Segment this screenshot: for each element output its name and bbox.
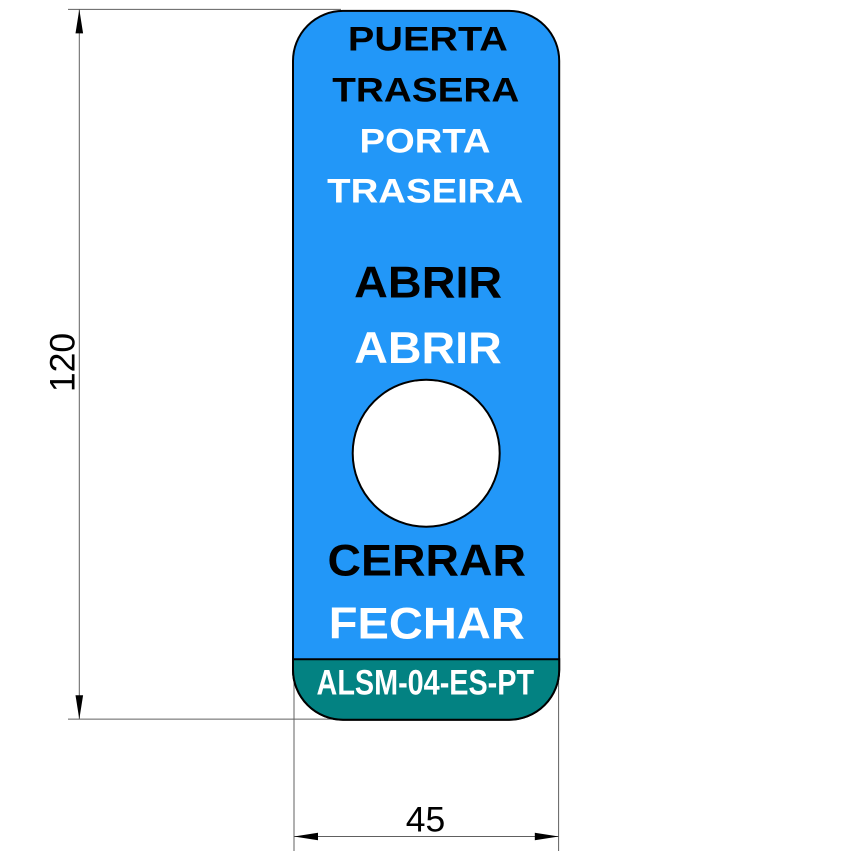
- svg-text:TRASEIRA: TRASEIRA: [327, 173, 523, 211]
- svg-text:TRASERA: TRASERA: [332, 71, 519, 109]
- svg-text:ABRIR: ABRIR: [354, 258, 502, 307]
- svg-text:ALSM-04-ES-PT: ALSM-04-ES-PT: [317, 664, 535, 703]
- svg-text:CERRAR: CERRAR: [328, 536, 527, 585]
- svg-text:FECHAR: FECHAR: [329, 600, 525, 649]
- svg-text:45: 45: [406, 800, 446, 840]
- svg-text:120: 120: [42, 333, 82, 392]
- svg-text:PUERTA: PUERTA: [348, 20, 508, 58]
- svg-text:ABRIR: ABRIR: [354, 324, 502, 373]
- svg-text:PORTA: PORTA: [360, 123, 491, 161]
